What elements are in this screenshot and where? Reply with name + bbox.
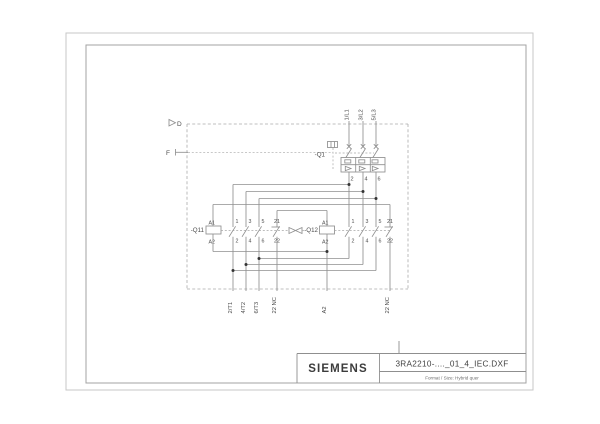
- bottom-terminal-label: A2: [322, 306, 328, 313]
- zone-label-f: F: [166, 150, 170, 157]
- contact-terminal-label: 2: [236, 239, 239, 245]
- wiring-upper: [213, 172, 390, 227]
- thermal-release-icon: [359, 160, 365, 163]
- contact-terminal-label: 3: [249, 219, 252, 225]
- bottom-terminal-label: 22 NC: [272, 297, 278, 313]
- breaker-ref-label: -Q1: [315, 152, 326, 159]
- manual-operator-icon: [328, 142, 338, 148]
- inner-frame: [86, 45, 526, 383]
- contact-terminal-label: 2: [352, 239, 355, 245]
- brand-logo-text: SIEMENS: [308, 363, 367, 375]
- bottom-terminal-labels: 2/T1 4/T2 6/T3 22 NC A2 22 NC: [228, 297, 391, 313]
- coil-terminal-label: A1: [209, 221, 216, 227]
- sheet-frames: [66, 33, 533, 390]
- contact-terminal-label: 4: [249, 239, 252, 245]
- contact-terminal-label: 6: [379, 239, 382, 245]
- coil-terminal-label: A2: [209, 240, 216, 246]
- thermal-release-icon: [372, 160, 378, 163]
- junction-dot: [258, 257, 261, 260]
- zone-label-d: D: [177, 121, 182, 128]
- contactor-ref-label: -Q11: [191, 227, 205, 234]
- contact-terminal-label: 21: [274, 219, 280, 225]
- mechanical-interlock-icon: [289, 228, 306, 234]
- magnetic-release-icon: [359, 166, 365, 170]
- contact-terminal-label: 5: [262, 219, 265, 225]
- contact-terminal-label: 21: [387, 219, 393, 225]
- junction-dot: [232, 269, 235, 272]
- title-block: SIEMENS 3RA2210-...._01_4_IEC.DXF Format…: [297, 341, 526, 383]
- circuit-breaker-q1: -Q1 2 4 6: [315, 142, 385, 183]
- contact-terminal-label: 6: [262, 239, 265, 245]
- drawing-name: 3RA2210-...._01_4_IEC.DXF: [395, 360, 508, 369]
- coil-terminal-label: A1: [322, 221, 329, 227]
- bottom-terminal-label: 2/T1: [228, 302, 234, 314]
- coil-symbol: [206, 226, 221, 234]
- bottom-terminal-label: 4/T2: [241, 302, 247, 314]
- supply-terminal-label: 1/L1: [345, 109, 351, 120]
- supply-terminal-label: 3/L2: [359, 109, 365, 120]
- supply-lines: 1/L1 3/L2 5/L3: [345, 109, 378, 146]
- bottom-terminal-label: 22 NC: [385, 297, 391, 313]
- zone-markers: D F: [166, 120, 333, 158]
- contact-terminal-label: 3: [366, 219, 369, 225]
- junction-dot: [362, 190, 365, 193]
- junction-dot: [375, 197, 378, 200]
- breaker-out-terminal: 2: [351, 177, 354, 183]
- junction-dot: [348, 183, 351, 186]
- thermal-release-icon: [345, 160, 351, 163]
- bottom-terminal-label: 6/T3: [254, 302, 260, 314]
- contactor-q11: -Q11 A1 A2 1 3 5 21 2 4 6 22: [191, 219, 289, 246]
- coil-terminal-label: A2: [322, 240, 329, 246]
- breaker-out-terminal: 4: [365, 177, 368, 183]
- contact-terminal-label: 1: [236, 219, 239, 225]
- contact-terminal-label: 5: [379, 219, 382, 225]
- contact-terminal-label: 4: [366, 239, 369, 245]
- format-note: Format / Size: Hybrid quer: [425, 376, 479, 381]
- drawing-sheet: D F 1/L1 3/L2 5/L3 -Q1: [0, 0, 600, 424]
- wiring-lower: [213, 234, 390, 291]
- magnetic-release-icon: [372, 166, 378, 170]
- coil-symbol: [320, 226, 335, 234]
- contact-terminal-label: 1: [352, 219, 355, 225]
- junction-dot: [245, 263, 248, 266]
- contactor-ref-label: -Q12: [304, 227, 318, 234]
- outer-frame: [66, 33, 533, 390]
- magnetic-release-icon: [345, 166, 351, 170]
- schematic-canvas: D F 1/L1 3/L2 5/L3 -Q1: [0, 0, 600, 424]
- junction-dot: [326, 250, 329, 253]
- breaker-out-terminal: 6: [378, 177, 381, 183]
- zone-d-arrow-icon: [169, 120, 176, 127]
- supply-terminal-label: 5/L3: [372, 109, 378, 120]
